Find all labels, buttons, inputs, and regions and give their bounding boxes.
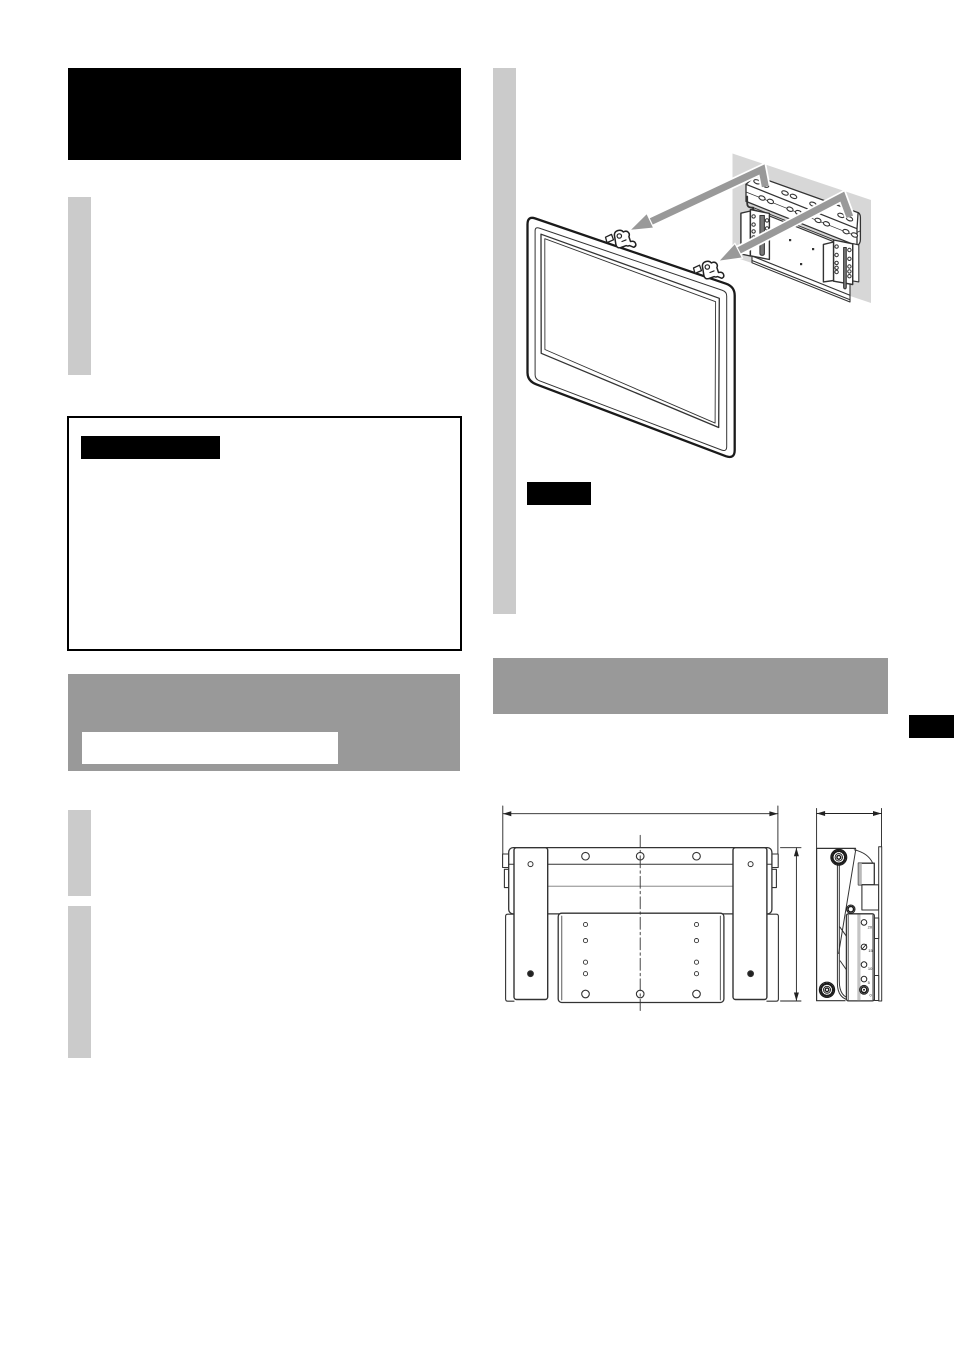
svg-text:15: 15 (868, 948, 873, 953)
svg-text:10: 10 (868, 966, 873, 971)
svg-text:20: 20 (868, 925, 873, 930)
